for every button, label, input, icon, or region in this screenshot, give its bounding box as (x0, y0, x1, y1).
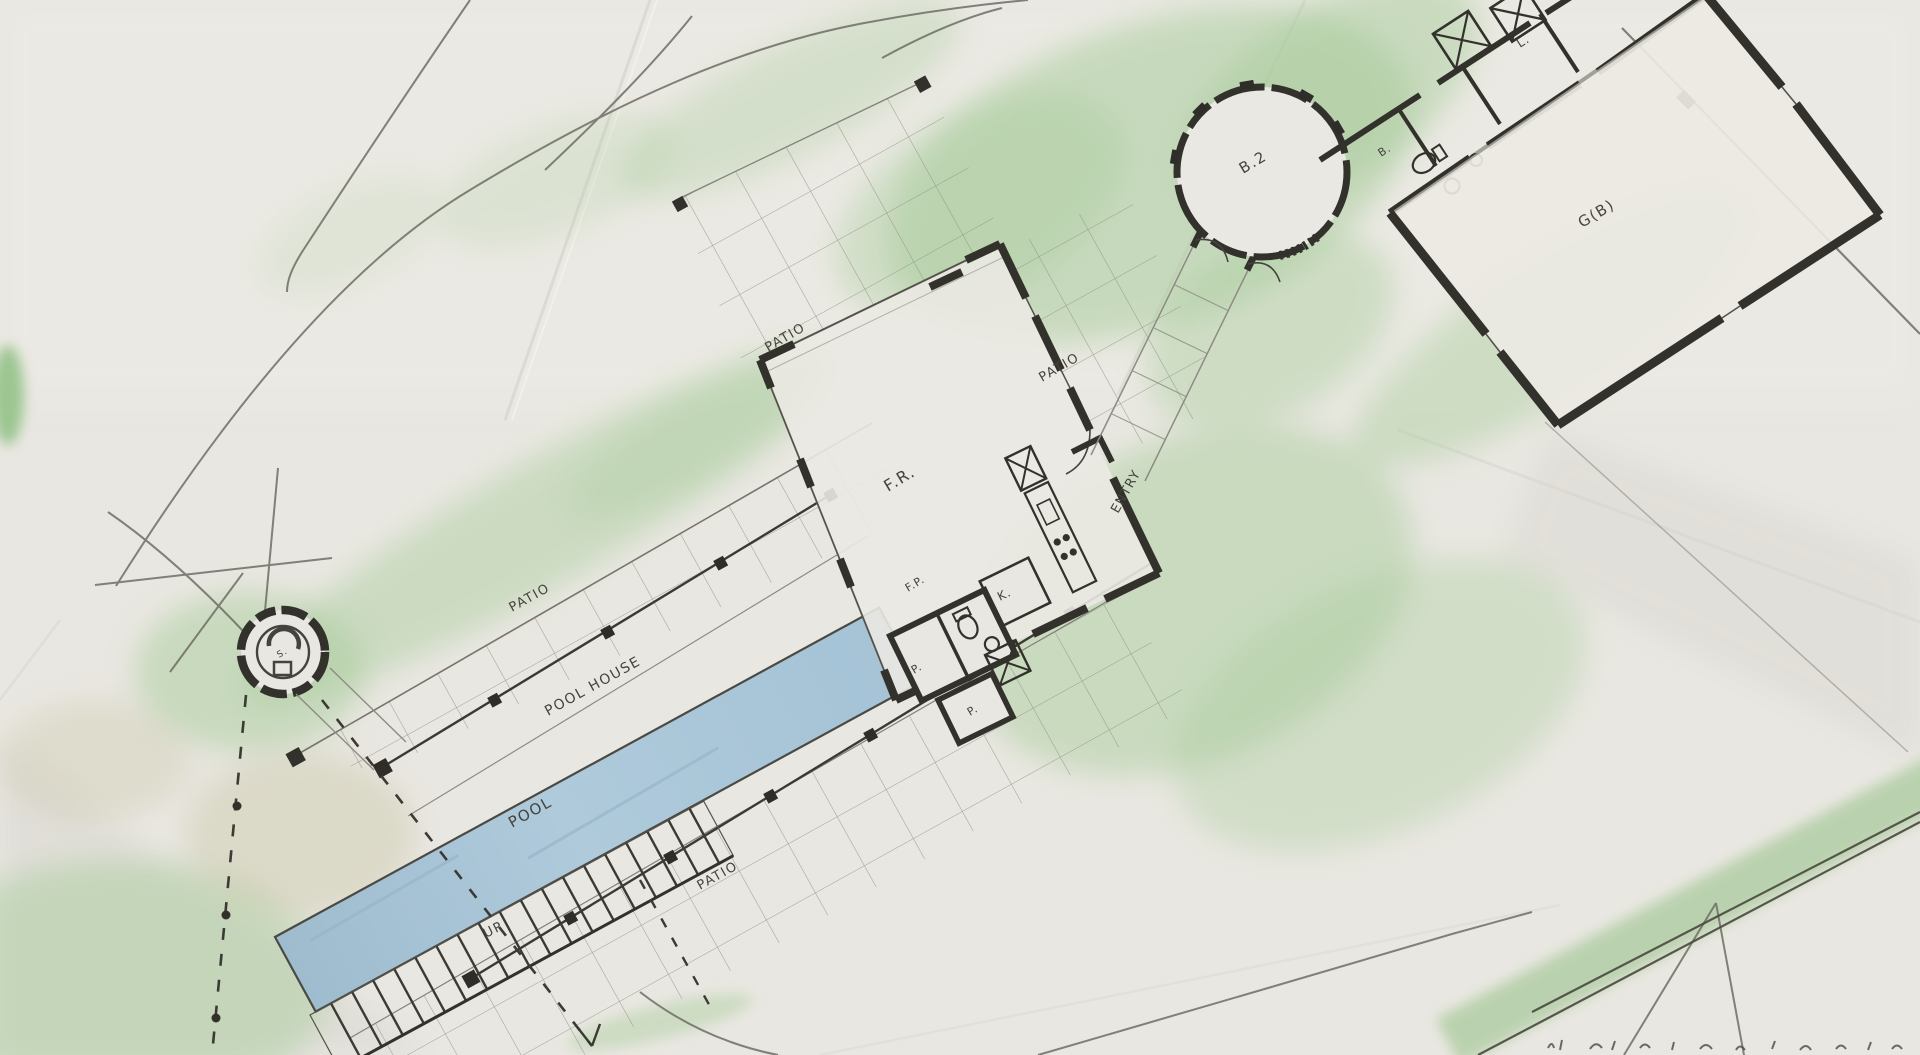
sketch-photo: F.R. K. F.P. ENTRY P. P. B.2 B. L. G(B) … (0, 0, 1920, 1055)
site-plan-sketch: F.R. K. F.P. ENTRY P. P. B.2 B. L. G(B) … (0, 0, 1920, 1055)
